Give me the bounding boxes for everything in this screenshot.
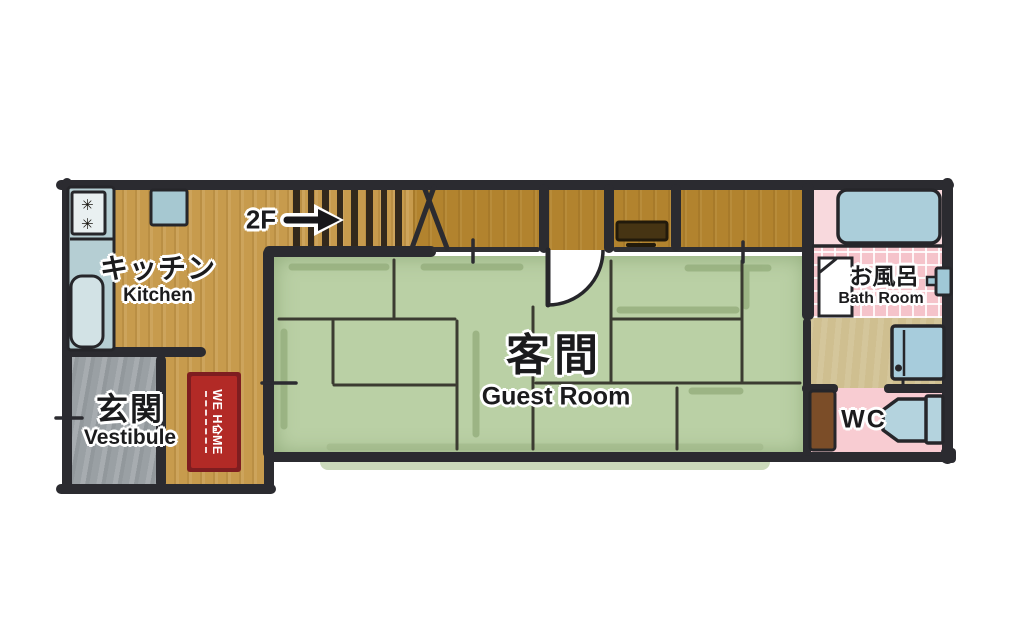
wc-label: WC — [841, 406, 887, 435]
rug-inner: WE HME — [191, 376, 237, 468]
stove-burner-icon: ✳ — [81, 198, 94, 213]
stairs-up-arrow — [287, 204, 344, 236]
kitchen-label-en: Kitchen — [123, 285, 193, 307]
guest-room-label-en: Guest Room — [482, 383, 631, 412]
hall-shelf-ledge — [626, 243, 656, 247]
entry-rug: WE HME — [187, 372, 241, 472]
rug-content: WE HME — [205, 376, 223, 468]
stairs-2f-label: 2F — [246, 205, 276, 236]
kitchen-label-ja: キッチン — [100, 247, 216, 287]
bathtub — [838, 190, 940, 243]
stair-break-line — [412, 187, 447, 248]
shower-panel — [927, 268, 951, 295]
hall-shelf — [617, 222, 667, 240]
wall-cabinet — [151, 190, 187, 225]
rug-brand-text: WE HME — [210, 376, 223, 468]
vestibule-label-ja: 玄関 — [96, 384, 164, 430]
rug-fine-print — [205, 391, 207, 453]
washing-machine — [892, 326, 944, 385]
sink — [71, 276, 103, 347]
toilet — [883, 396, 943, 443]
floor-plan-canvas: ✳ ✳ WE HME キッチン Kitchen 2F 玄関 Vestibule … — [0, 0, 1024, 640]
guest-room-label-ja: 客間 — [506, 319, 602, 383]
vestibule-label-en: Vestibule — [84, 426, 176, 450]
house-icon — [212, 424, 223, 435]
stove-burner-icon: ✳ — [81, 217, 94, 232]
bath-room-label-ja: お風呂 — [850, 257, 919, 291]
wc-door — [810, 391, 835, 450]
guest-room-door — [548, 250, 603, 305]
bath-room-label-en: Bath Room — [838, 290, 923, 308]
